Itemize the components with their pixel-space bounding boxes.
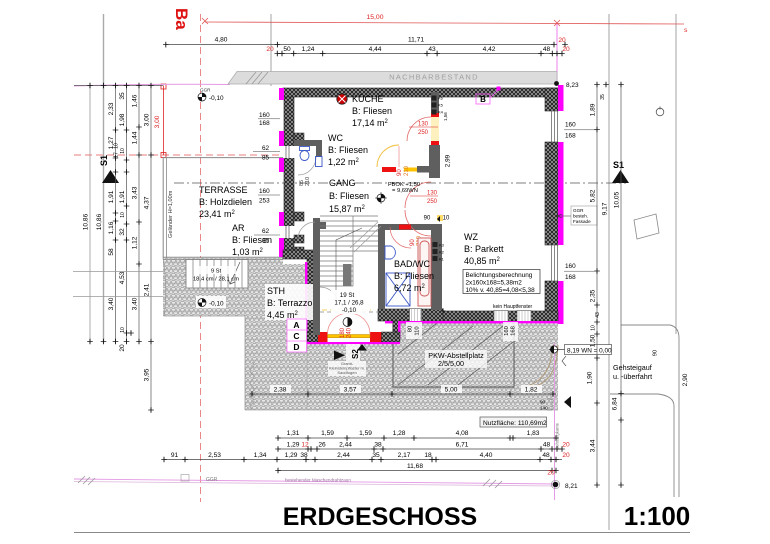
svg-text:35: 35	[600, 94, 606, 100]
svg-text:17,1 / 26,8: 17,1 / 26,8	[334, 300, 364, 307]
svg-text:2,53: 2,53	[208, 452, 221, 459]
svg-text:48: 48	[543, 442, 551, 449]
svg-text:1,46: 1,46	[132, 94, 139, 107]
svg-text:1,59: 1,59	[321, 430, 334, 437]
svg-text:32: 32	[119, 228, 126, 236]
svg-text:62: 62	[262, 228, 270, 235]
svg-text:40,85 m2: 40,85 m2	[464, 256, 501, 266]
svg-text:KÜCHE: KÜCHE	[352, 94, 384, 104]
svg-text:6,72 m2: 6,72 m2	[394, 283, 426, 293]
svg-text:D: D	[293, 342, 299, 352]
svg-text:1,16: 1,16	[108, 221, 115, 234]
svg-text:5,82: 5,82	[590, 189, 597, 202]
svg-text:1,59: 1,59	[359, 430, 372, 437]
svg-text:38: 38	[300, 452, 308, 459]
svg-text:80: 80	[408, 326, 414, 332]
svg-text:GANG: GANG	[329, 178, 356, 188]
svg-text:1,82: 1,82	[525, 387, 538, 394]
svg-text:160: 160	[504, 326, 510, 336]
svg-text:1:100: 1:100	[624, 501, 691, 531]
svg-text:1,34: 1,34	[254, 452, 267, 459]
svg-text:3,43: 3,43	[132, 186, 139, 199]
svg-text:= 9,69WN: = 9,69WN	[392, 188, 418, 194]
svg-text:20: 20	[562, 46, 570, 53]
svg-text:250: 250	[427, 199, 438, 205]
svg-text:1,12: 1,12	[132, 236, 139, 249]
svg-text:u. -überfahrt: u. -überfahrt	[613, 372, 652, 381]
svg-text:3,00: 3,00	[144, 113, 151, 126]
svg-text:K2: K2	[439, 250, 445, 255]
svg-text:2,17: 2,17	[398, 452, 411, 459]
svg-text:1,89: 1,89	[590, 103, 597, 116]
svg-text:B: Fliesen: B: Fliesen	[328, 145, 368, 155]
svg-text:8,19 WN = 0,00: 8,19 WN = 0,00	[567, 348, 612, 355]
svg-text:48: 48	[542, 452, 550, 459]
svg-text:10,86: 10,86	[83, 213, 90, 230]
svg-text:4,80: 4,80	[215, 37, 228, 44]
svg-text:2,44: 2,44	[337, 452, 350, 459]
svg-text:85: 85	[262, 238, 270, 245]
svg-text:35: 35	[372, 452, 380, 459]
svg-text:6,84: 6,84	[612, 397, 619, 410]
svg-text:210: 210	[305, 177, 311, 186]
svg-text:ERDGESCHOSS: ERDGESCHOSS	[283, 503, 477, 531]
svg-text:Ba: Ba	[172, 8, 191, 30]
svg-text:3,57: 3,57	[344, 387, 357, 394]
svg-text:8,21: 8,21	[565, 483, 578, 490]
svg-text:9 St: 9 St	[211, 269, 222, 275]
svg-text:1,29: 1,29	[285, 452, 298, 459]
svg-text:K3: K3	[439, 243, 445, 248]
svg-text:AR: AR	[232, 223, 245, 233]
svg-text:K6: K6	[438, 96, 444, 101]
svg-text:1,31: 1,31	[287, 430, 300, 437]
svg-text:168: 168	[259, 120, 270, 127]
svg-text:10: 10	[120, 327, 126, 333]
svg-text:1,91: 1,91	[108, 190, 115, 203]
svg-text:110: 110	[415, 326, 421, 335]
svg-text:GGR: GGR	[206, 477, 218, 483]
svg-text:A: A	[293, 320, 299, 330]
svg-text:WZ: WZ	[464, 232, 478, 242]
svg-text:26: 26	[318, 442, 326, 449]
svg-text:210: 210	[404, 165, 410, 176]
svg-text:160: 160	[259, 112, 270, 119]
svg-text:58: 58	[108, 248, 115, 256]
svg-text:180: 180	[340, 327, 346, 338]
svg-text:10: 10	[120, 148, 126, 154]
svg-text:1,44: 1,44	[132, 131, 139, 144]
svg-text:bestehender Maschendrahtzaun: bestehender Maschendrahtzaun	[285, 478, 351, 483]
svg-text:9,17: 9,17	[602, 202, 609, 215]
svg-text:Gehsteigauf: Gehsteigauf	[613, 363, 652, 372]
svg-text:3,95: 3,95	[144, 368, 151, 381]
svg-text:43: 43	[595, 312, 601, 318]
svg-text:-0,10: -0,10	[209, 95, 224, 102]
svg-text:1,83: 1,83	[527, 430, 540, 437]
svg-text:130: 130	[418, 122, 429, 128]
svg-text:160: 160	[565, 263, 576, 270]
svg-text:2,35: 2,35	[590, 289, 597, 302]
svg-text:B: Holzdielen: B: Holzdielen	[199, 197, 252, 207]
svg-text:3,44: 3,44	[590, 439, 597, 452]
svg-text:1,28: 1,28	[393, 430, 406, 437]
svg-text:3,40: 3,40	[132, 297, 139, 310]
svg-text:1,24: 1,24	[302, 46, 315, 53]
svg-text:20: 20	[558, 37, 566, 44]
svg-text:4,42: 4,42	[483, 46, 496, 53]
svg-text:Gehsteigkante: Gehsteigkante	[555, 422, 560, 450]
svg-text:kein Hauptfenster: kein Hauptfenster	[493, 304, 533, 310]
svg-text:10: 10	[443, 216, 450, 222]
svg-text:5,00: 5,00	[445, 387, 458, 394]
svg-text:1,29: 1,29	[287, 442, 300, 449]
svg-text:43: 43	[428, 46, 436, 53]
svg-text:S1: S1	[613, 160, 624, 170]
svg-text:10: 10	[591, 325, 597, 331]
svg-text:B: Fliesen: B: Fliesen	[352, 106, 392, 116]
svg-text:90: 90	[540, 400, 546, 405]
svg-text:10: 10	[114, 143, 120, 149]
svg-text:1,91: 1,91	[119, 190, 126, 203]
svg-text:4,53: 4,53	[119, 271, 126, 284]
svg-text:2,44: 2,44	[339, 442, 352, 449]
svg-text:2,90: 2,90	[682, 373, 689, 386]
svg-text:B: Fliesen: B: Fliesen	[394, 271, 434, 281]
svg-text:4,08: 4,08	[456, 430, 469, 437]
svg-text:130: 130	[427, 191, 438, 197]
svg-text:1,90: 1,90	[587, 371, 594, 384]
svg-text:C: C	[293, 331, 299, 341]
svg-text:4,45 m2: 4,45 m2	[267, 310, 299, 320]
svg-text:15,87 m2: 15,87 m2	[329, 204, 366, 214]
svg-text:15,00: 15,00	[366, 14, 383, 21]
svg-text:3,00: 3,00	[154, 115, 161, 128]
svg-text:8,23: 8,23	[566, 82, 579, 89]
svg-text:Saodfugen: Saodfugen	[337, 370, 356, 375]
svg-text:Geländer H=1,00m: Geländer H=1,00m	[168, 190, 174, 238]
svg-text:90: 90	[397, 169, 403, 176]
svg-text:Belichtungsberechnung: Belichtungsberechnung	[466, 272, 533, 279]
svg-text:10% v. 40,85=4,08<5,38: 10% v. 40,85=4,08<5,38	[466, 287, 536, 294]
svg-text:10,05: 10,05	[614, 191, 621, 208]
svg-text:253: 253	[259, 198, 270, 205]
svg-text:2,38: 2,38	[274, 387, 287, 394]
svg-text:STH: STH	[267, 286, 285, 296]
svg-text:B: Fliesen: B: Fliesen	[329, 191, 369, 201]
svg-text:besteh.: besteh.	[573, 214, 588, 219]
svg-text:168: 168	[511, 326, 517, 336]
svg-text:160: 160	[259, 188, 270, 195]
svg-text:168: 168	[565, 133, 576, 140]
svg-text:3,40: 3,40	[108, 297, 115, 310]
svg-text:11,68: 11,68	[407, 463, 423, 470]
svg-text:B: Terrazzo: B: Terrazzo	[267, 298, 312, 308]
svg-text:2,99: 2,99	[445, 154, 452, 167]
svg-text:S1: S1	[99, 155, 109, 166]
svg-text:20: 20	[266, 46, 274, 53]
svg-text:1,56: 1,56	[443, 112, 448, 121]
svg-text:140: 140	[540, 406, 548, 411]
svg-text:38: 38	[374, 442, 382, 449]
svg-text:B: Parkett: B: Parkett	[464, 244, 504, 254]
svg-text:48: 48	[543, 46, 551, 53]
svg-text:6,71: 6,71	[456, 442, 469, 449]
svg-text:Nutzfläche: 110,69m2: Nutzfläche: 110,69m2	[483, 420, 547, 427]
svg-text:K5: K5	[438, 103, 444, 108]
svg-text:10,86: 10,86	[96, 213, 103, 230]
svg-text:GGR: GGR	[573, 208, 584, 213]
svg-text:240: 240	[347, 327, 353, 338]
svg-text:17: 17	[114, 152, 120, 158]
svg-text:4,40: 4,40	[480, 452, 493, 459]
svg-text:1,22 m2: 1,22 m2	[328, 157, 360, 167]
svg-text:-0,10: -0,10	[342, 307, 357, 314]
svg-text:90: 90	[424, 216, 431, 222]
svg-text:1,50: 1,50	[590, 334, 597, 347]
svg-text:35: 35	[119, 92, 126, 100]
svg-text:20: 20	[562, 442, 570, 449]
svg-text:GGR: GGR	[200, 88, 211, 93]
svg-text:4,37: 4,37	[144, 196, 151, 209]
svg-text:4,44: 4,44	[369, 46, 382, 53]
svg-text:TERRASSE: TERRASSE	[199, 185, 248, 195]
svg-text:2/5/5,00: 2/5/5,00	[438, 359, 464, 368]
svg-text:1,03 m2: 1,03 m2	[232, 247, 264, 257]
svg-text:160: 160	[565, 122, 576, 129]
svg-text:B: B	[480, 95, 486, 104]
svg-text:WC: WC	[328, 133, 343, 143]
svg-text:12: 12	[301, 442, 309, 449]
svg-text:2,33: 2,33	[108, 102, 115, 115]
svg-text:23,41 m2: 23,41 m2	[199, 209, 236, 219]
svg-text:91: 91	[171, 452, 179, 459]
svg-text:11,71: 11,71	[408, 37, 424, 44]
svg-text:BAD/WC: BAD/WC	[394, 259, 431, 269]
svg-text:20: 20	[547, 470, 555, 477]
svg-text:20: 20	[562, 452, 570, 459]
svg-text:18,4 cm / 28,1 cm: 18,4 cm / 28,1 cm	[193, 277, 239, 283]
svg-text:NACHBARBESTAND: NACHBARBESTAND	[389, 73, 479, 82]
svg-text:K1: K1	[439, 257, 445, 262]
svg-text:2,41: 2,41	[144, 283, 151, 296]
svg-text:50: 50	[283, 46, 291, 53]
svg-text:250: 250	[418, 130, 429, 136]
svg-text:10: 10	[120, 212, 126, 218]
svg-text:90: 90	[653, 350, 659, 356]
svg-text:85: 85	[262, 155, 270, 162]
svg-text:1,98: 1,98	[119, 113, 126, 126]
svg-text:62: 62	[262, 145, 270, 152]
svg-text:18: 18	[424, 452, 432, 459]
svg-text:2x160x168=5,38m2: 2x160x168=5,38m2	[466, 280, 523, 287]
svg-text:Fassade: Fassade	[573, 219, 591, 224]
svg-text:168: 168	[565, 274, 576, 281]
svg-text:-0,10: -0,10	[209, 301, 224, 308]
svg-text:17,14 m2: 17,14 m2	[352, 118, 389, 128]
svg-text:s: s	[684, 27, 688, 34]
svg-text:20: 20	[119, 344, 126, 352]
svg-text:19 St: 19 St	[340, 292, 355, 299]
svg-text:90: 90	[410, 239, 416, 246]
